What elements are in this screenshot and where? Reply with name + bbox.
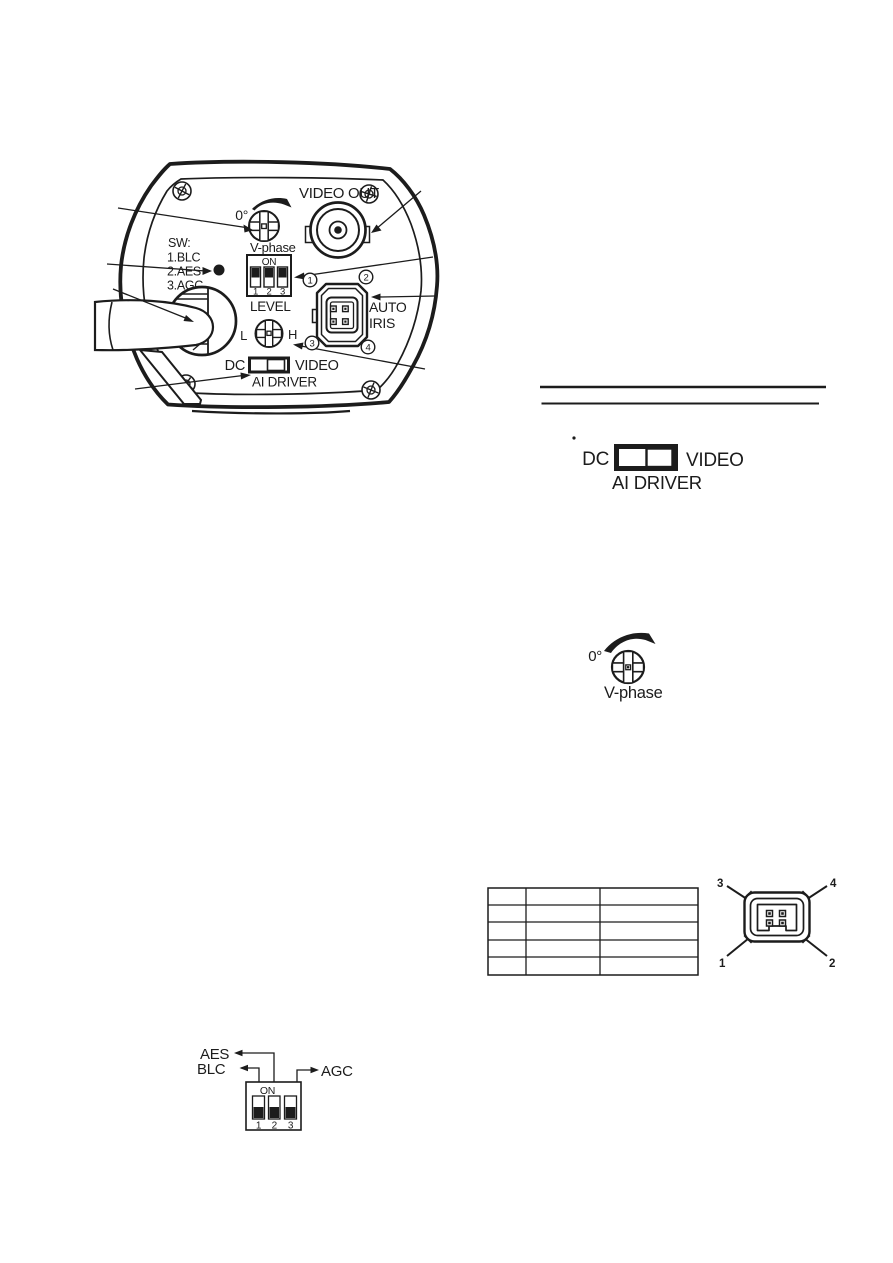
dip-num-2: 2: [267, 287, 272, 298]
video-out-label: VIDEO OUT: [299, 185, 379, 202]
ai-driver-label: AI DRIVER: [252, 375, 317, 390]
circled-pin-1: 1: [303, 273, 317, 287]
svg-text:3: 3: [310, 338, 315, 349]
iris-label: IRIS: [369, 315, 395, 331]
pin-1-label: 1: [719, 958, 726, 970]
dip-switch-diagram: AES BLC AGC ON 1 2 3: [197, 1046, 353, 1132]
sw-legend-title: SW:: [168, 236, 190, 250]
v-phase-label: V-phase: [250, 240, 296, 255]
level-high-label: H: [288, 327, 297, 342]
scanned-manual-page: VIDEO OUT 0° V-phase SW: 1.BLC 2.AES 3.A…: [0, 0, 893, 1263]
zero-degree-label: 0°: [235, 207, 248, 223]
zero-degree-label: 0°: [588, 648, 602, 665]
sw-legend-1: 1.BLC: [167, 251, 201, 265]
iris-mode-switch: [248, 357, 290, 374]
svg-text:4: 4: [366, 342, 371, 353]
circled-pin-2: 2: [359, 270, 373, 284]
sw-legend-2: 2.AES: [167, 265, 201, 279]
svg-text:1: 1: [308, 275, 313, 286]
pin-2-label: 2: [829, 958, 835, 970]
dc-label: DC: [582, 449, 609, 470]
level-label: LEVEL: [250, 299, 291, 314]
circled-pin-4: 4: [361, 340, 375, 354]
level-dial: [256, 320, 283, 347]
auto-label: AUTO: [369, 299, 407, 315]
video-label: VIDEO: [686, 450, 744, 471]
auto-iris-connector: [313, 284, 368, 346]
pin-assignment-table: [488, 888, 698, 975]
dip-num-2: 2: [272, 1121, 278, 1132]
dip-num-1: 1: [253, 287, 258, 298]
blc-label: BLC: [197, 1061, 226, 1078]
v-phase-dial: [612, 651, 644, 683]
video-label: VIDEO: [295, 358, 339, 374]
dip-on-label: ON: [260, 1085, 275, 1097]
dip-num-3: 3: [280, 287, 285, 298]
ai-driver-label: AI DRIVER: [612, 472, 702, 493]
iris-mode-switch-diagram: DC VIDEO AI DRIVER: [572, 436, 743, 493]
iris-connector-diagram: 3 4 1 2: [717, 878, 837, 970]
pin-3-label: 3: [717, 878, 723, 890]
camera-rear-panel-diagram: VIDEO OUT 0° V-phase SW: 1.BLC 2.AES 3.A…: [95, 162, 437, 414]
dc-label: DC: [225, 358, 245, 374]
stray-dot: [572, 436, 575, 439]
dip-num-3: 3: [288, 1121, 294, 1132]
agc-label: AGC: [321, 1063, 353, 1080]
indicator-dot: [214, 265, 225, 276]
v-phase-diagram: 0° V-phase: [588, 633, 662, 702]
rotation-arrow-icon: [604, 633, 656, 653]
dip-num-1: 1: [256, 1121, 262, 1132]
body-bottom-edge: [192, 411, 350, 413]
camera-manual-figures: VIDEO OUT 0° V-phase SW: 1.BLC 2.AES 3.A…: [0, 0, 893, 1263]
dip-switch: ON 1 2 3: [247, 255, 291, 298]
v-phase-label: V-phase: [604, 684, 663, 702]
pin-4-label: 4: [830, 878, 837, 890]
svg-text:2: 2: [364, 272, 369, 283]
section-divider-rule: [540, 387, 826, 404]
circled-pin-3: 3: [305, 336, 319, 350]
switch-knob: [647, 449, 673, 468]
level-low-label: L: [240, 328, 247, 343]
